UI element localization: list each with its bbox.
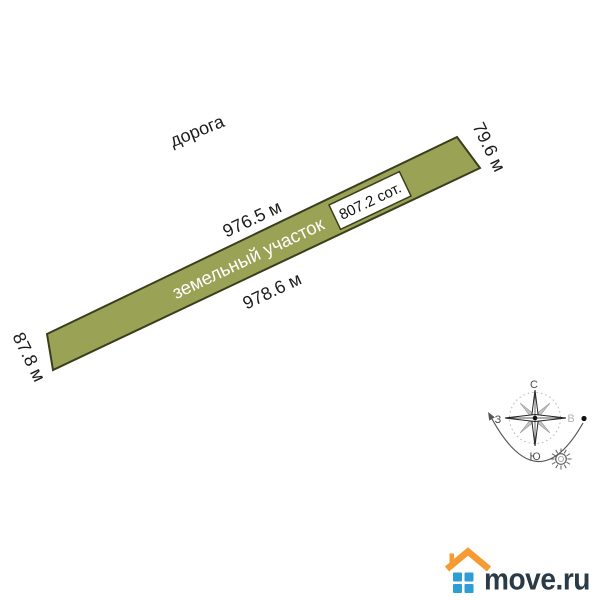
compass-main-points <box>505 390 566 446</box>
compass-east-label: В <box>567 413 574 425</box>
windows <box>453 573 474 594</box>
logo-text: move.ru <box>484 562 590 597</box>
compass-rose: С Ю З В <box>488 379 587 470</box>
sun-icon <box>551 449 572 470</box>
compass-west-label: З <box>495 414 502 426</box>
road-label: дорога <box>167 111 228 151</box>
diagram-canvas: дорога 976.5 м 978.6 м 87.8 м 79.6 м зем… <box>0 0 600 600</box>
arc-start-dot <box>581 416 586 421</box>
dimension-left: 87.8 м <box>9 329 50 385</box>
house-icon <box>447 552 489 594</box>
moveru-logo: move.ru <box>447 552 590 597</box>
compass-north-label: С <box>530 379 538 391</box>
land-plot-diagram: дорога 976.5 м 978.6 м 87.8 м 79.6 м зем… <box>0 0 600 600</box>
